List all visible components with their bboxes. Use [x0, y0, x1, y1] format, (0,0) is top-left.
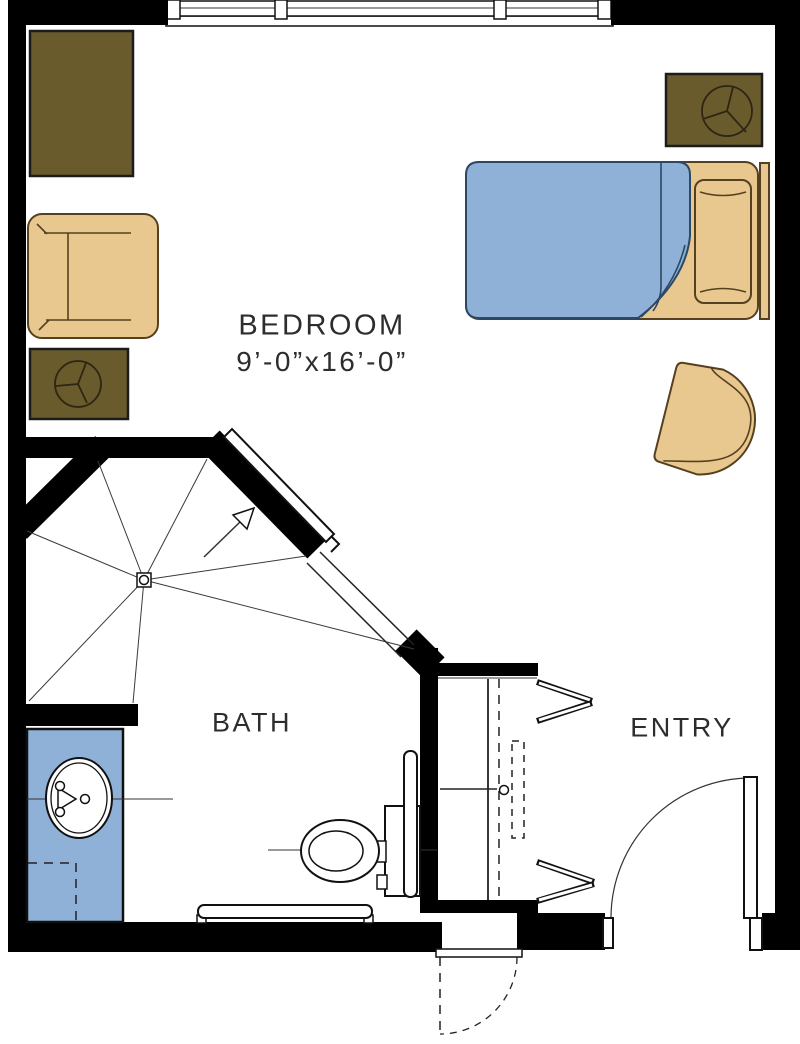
hanger-icon — [537, 862, 594, 901]
faucet-handle-icon — [56, 808, 65, 817]
entry-label: ENTRY — [630, 713, 734, 744]
toilet — [268, 751, 437, 897]
entry-door — [603, 777, 762, 950]
sink-drain-icon — [81, 795, 90, 804]
window-sill — [166, 16, 613, 26]
vanity-sink — [27, 729, 173, 922]
nightstand-left — [30, 349, 128, 419]
wall-bath-closet — [420, 648, 438, 913]
floor-slope-line — [27, 531, 144, 580]
window — [166, 0, 613, 26]
window-mullion — [598, 0, 611, 19]
dresser — [30, 31, 133, 176]
nightstand-top — [666, 74, 762, 146]
headboard — [760, 163, 769, 319]
wall-top-left — [8, 0, 168, 25]
direction-arrow-shaft — [204, 522, 240, 557]
shower-grab-bar — [197, 905, 373, 923]
door-threshold — [436, 949, 522, 957]
wall-diagonal-end — [406, 640, 434, 668]
bedroom-label: BEDROOM — [238, 310, 405, 343]
pillow — [695, 180, 751, 303]
accent-chair-body — [652, 359, 766, 486]
floor-slope-line — [98, 461, 144, 580]
armchair — [28, 214, 158, 338]
floor-slope-line — [133, 580, 144, 703]
toilet-bowl — [301, 820, 379, 882]
window-mullion — [494, 0, 506, 19]
shower-area — [27, 459, 414, 703]
floor-drain-icon — [140, 576, 149, 585]
bed — [466, 162, 769, 319]
door-leaf — [744, 777, 757, 918]
wall-closet-bottom — [438, 900, 538, 913]
floor-slope-line — [144, 556, 306, 580]
wall-corridor-mid — [517, 913, 605, 950]
wall-bedroom-bath — [26, 437, 218, 458]
doorway-edge — [320, 552, 414, 645]
wall-shower-stub — [26, 704, 138, 726]
corridor-door — [436, 949, 522, 1034]
wall-top-right — [611, 0, 800, 25]
doorway-edge — [307, 563, 401, 657]
blanket — [466, 162, 690, 318]
floor-plan-drawing — [0, 0, 800, 1044]
dresser-top — [30, 31, 133, 176]
floor-slope-line — [144, 459, 207, 580]
wall-right — [775, 0, 800, 950]
faucet-handle-icon — [56, 782, 65, 791]
sink-bowl — [46, 758, 112, 838]
sliding-door-handle — [331, 536, 339, 552]
wall-closet-top — [438, 663, 538, 676]
wall-left — [8, 0, 26, 952]
closet — [438, 678, 594, 901]
door-jamb — [750, 918, 762, 950]
nightstand-top — [30, 349, 128, 419]
window-mullion — [167, 0, 180, 19]
grab-bar-horizontal — [198, 905, 372, 918]
nightstand-right — [666, 74, 762, 146]
accent-chair — [652, 359, 766, 486]
door-jamb — [603, 918, 613, 948]
door-swing-arc — [611, 778, 751, 918]
grab-bar-vertical — [404, 751, 417, 897]
flush-lever — [377, 875, 387, 889]
hanger-icon — [537, 682, 592, 721]
bath-label: BATH — [212, 708, 292, 739]
wall-corridor-right — [762, 913, 800, 950]
rod-support-post — [500, 786, 509, 795]
floor-plan: BEDROOM 9’-0”x16’-0” BATH ENTRY — [0, 0, 800, 1044]
wall-bottom — [8, 922, 442, 952]
window-mullion — [275, 0, 287, 19]
bedroom-dimensions: 9’-0”x16’-0” — [236, 346, 408, 378]
floor-slope-line — [144, 580, 414, 649]
wall-diagonal — [210, 440, 317, 549]
floor-slope-line — [29, 580, 144, 701]
door-swing-arc-dashed — [440, 957, 517, 1034]
closet-shelf-above-dashed — [512, 741, 524, 838]
